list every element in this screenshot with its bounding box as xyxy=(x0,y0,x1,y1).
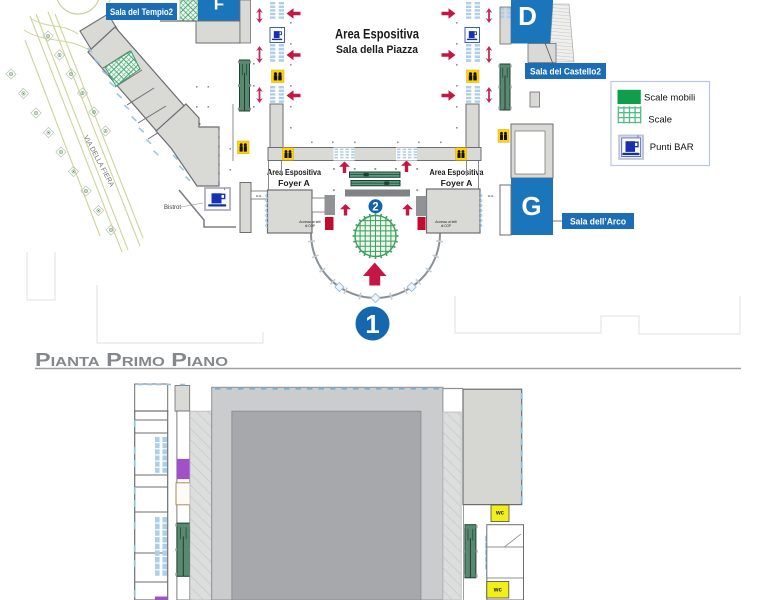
svg-text:u.s.: u.s. xyxy=(256,193,262,198)
svg-text:': ' xyxy=(476,27,477,33)
svg-text:Sala del Castello2: Sala del Castello2 xyxy=(530,67,601,77)
svg-text:wc: wc xyxy=(493,588,503,594)
svg-text:Sala del Tempio2: Sala del Tempio2 xyxy=(110,7,173,17)
svg-text:Pianta Primo Piano: Pianta Primo Piano xyxy=(35,349,228,370)
svg-text:wc: wc xyxy=(495,511,505,517)
svg-text:Area Espositiva: Area Espositiva xyxy=(430,167,484,177)
svg-text:Punti BAR: Punti BAR xyxy=(650,142,694,153)
svg-text:Scale: Scale xyxy=(648,115,672,126)
svg-text:Foyer A: Foyer A xyxy=(441,178,473,188)
svg-text:Bistrot: Bistrot xyxy=(164,205,181,211)
svg-text:Area Espositiva: Area Espositiva xyxy=(267,167,321,177)
svg-text:F: F xyxy=(214,0,224,14)
svg-text:Scale mobili: Scale mobili xyxy=(644,93,695,104)
svg-text:G: G xyxy=(521,191,541,221)
svg-text:2: 2 xyxy=(372,202,378,214)
svg-text:Sala della Piazza: Sala della Piazza xyxy=(336,44,419,56)
svg-text:di COP: di COP xyxy=(305,224,315,228)
svg-text:Area Espositiva: Area Espositiva xyxy=(335,27,419,42)
svg-text:u.s.: u.s. xyxy=(488,193,494,198)
svg-text:di COP: di COP xyxy=(441,224,451,228)
svg-text:': ' xyxy=(281,27,282,33)
svg-text:1: 1 xyxy=(365,309,379,339)
svg-text:D: D xyxy=(518,1,537,31)
svg-text:Foyer A: Foyer A xyxy=(278,178,310,188)
svg-text:Sala dell’Arco: Sala dell’Arco xyxy=(570,217,626,227)
